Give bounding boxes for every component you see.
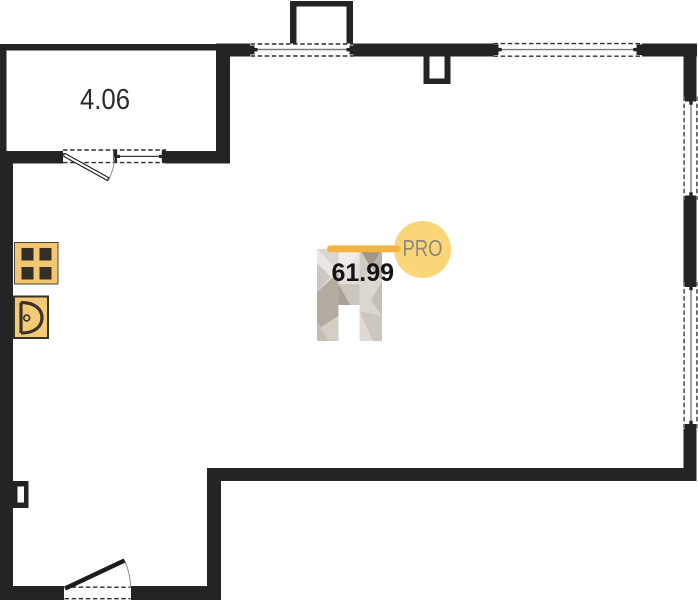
svg-text:PRO: PRO bbox=[403, 235, 443, 261]
svg-text:61.99: 61.99 bbox=[332, 259, 395, 287]
svg-text:4.06: 4.06 bbox=[80, 84, 130, 116]
